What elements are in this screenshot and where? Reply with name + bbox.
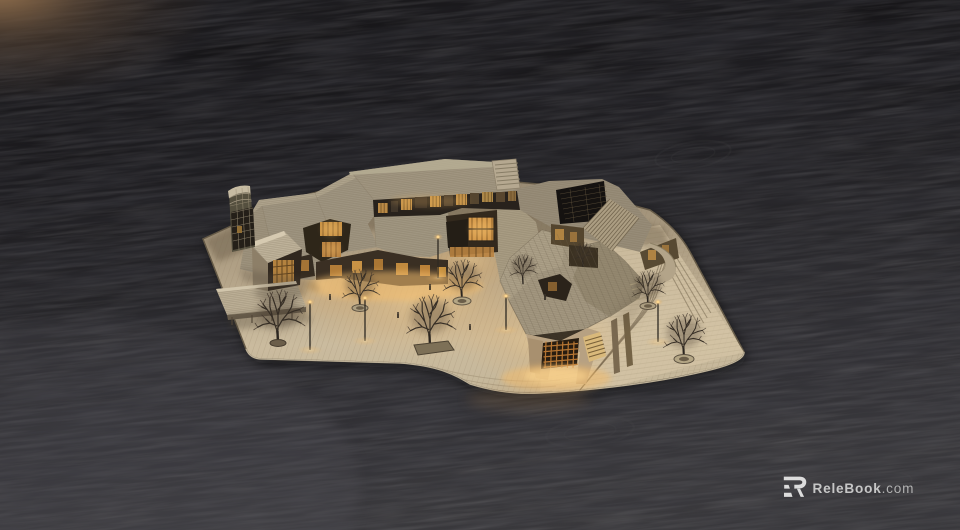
- svg-text:ReleBook.com: ReleBook.com: [813, 481, 915, 496]
